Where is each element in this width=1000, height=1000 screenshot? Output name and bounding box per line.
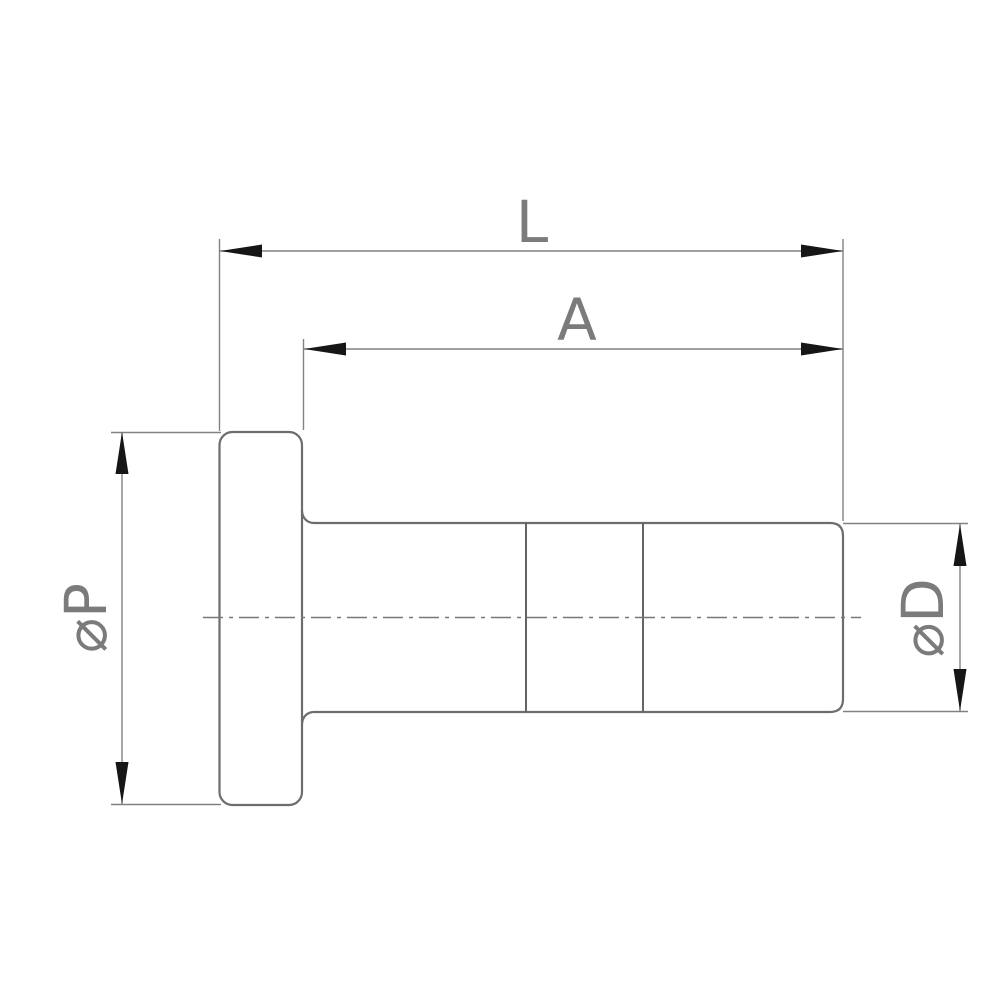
technical-drawing: L A ⌀P ⌀D: [0, 0, 1000, 1000]
dim-label-overall-length: L: [516, 188, 548, 256]
arrowhead-down-icon: [954, 669, 967, 711]
arrowhead-right-icon: [801, 245, 843, 258]
drawing-canvas: L A ⌀P ⌀D: [0, 0, 1000, 1000]
arrowhead-up-icon: [954, 524, 967, 566]
part-outline: [220, 432, 844, 805]
dimension-P: ⌀P: [52, 432, 221, 805]
dimension-D: ⌀D: [843, 524, 968, 712]
arrowhead-down-icon: [116, 762, 129, 804]
arrowhead-right-icon: [801, 343, 843, 356]
dimension-L: L: [220, 188, 844, 521]
arrowhead-left-icon: [220, 245, 262, 258]
dim-label-body-diameter: ⌀D: [889, 578, 957, 658]
flange-outline: [220, 432, 303, 805]
dimension-A: A: [304, 286, 844, 430]
arrowhead-up-icon: [116, 432, 129, 474]
arrowhead-left-icon: [304, 343, 346, 356]
dim-label-flange-diameter: ⌀P: [52, 583, 120, 653]
dim-label-body-length: A: [557, 286, 597, 354]
